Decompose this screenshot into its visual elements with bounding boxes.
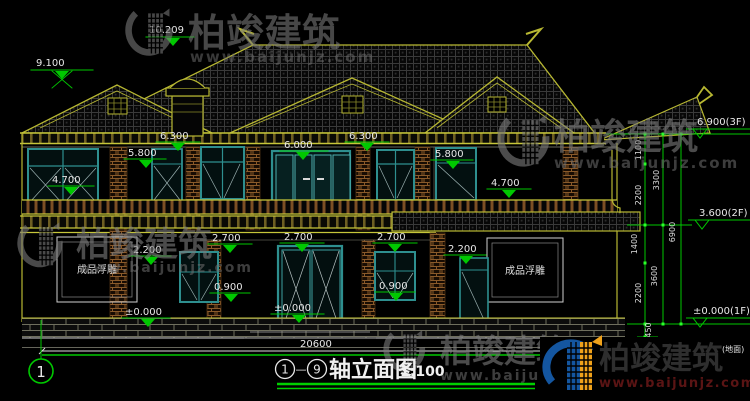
level-label-1f-winhead-left: 2.700 xyxy=(212,233,241,244)
total-width-dim: 20600 xyxy=(300,339,332,350)
relief-panel-right: 成品浮雕 xyxy=(487,238,563,302)
level-label-3f: 6.900(3F) xyxy=(697,117,746,128)
level-label-1f-winhead-right: 2.700 xyxy=(377,232,406,243)
watermark-brand: 柏竣建筑 xyxy=(76,225,212,265)
watermark-url: www.baijunjz.com xyxy=(78,260,253,276)
title-axis-start: 1 xyxy=(281,363,289,377)
brand-name-dark: 柏竣建筑 xyxy=(599,341,723,377)
cad-elevation-screenshot: 成品浮雕 成品浮雕 xyxy=(0,0,750,401)
gable-vent-right xyxy=(488,97,506,112)
watermark-top: 柏竣建筑 www.baijunjz.com xyxy=(129,8,376,66)
watermark-url: www.baijunjz.com xyxy=(554,154,739,172)
door-handle xyxy=(303,178,310,180)
brand-url-dark: www.baijunjz.com xyxy=(599,376,750,391)
level-label-2f-winhead-right: 5.800 xyxy=(435,149,464,160)
relief-panel-label: 成品浮雕 xyxy=(505,264,545,277)
sliding-door-2f-center xyxy=(272,151,350,204)
level-label-zero-left: ±0.000 xyxy=(125,307,162,318)
level-label-balcony-left: 4.700 xyxy=(52,175,81,186)
vdim-6900: 6900 xyxy=(668,222,677,242)
gable-vent-left xyxy=(108,98,127,114)
level-label-chimney: 9.100 xyxy=(36,58,65,69)
level-label-sill-right: 0.900 xyxy=(379,281,408,292)
vdim-2200-upper: 2200 xyxy=(634,185,643,205)
gable-vent-center xyxy=(342,96,363,113)
window-1f-right xyxy=(375,252,415,300)
level-label-zero-center: ±0.000 xyxy=(274,303,311,314)
vdim-3600: 3600 xyxy=(650,266,659,286)
vdim-3300: 3300 xyxy=(652,170,661,190)
door-1f-right-wing xyxy=(460,258,488,326)
level-label-2f-doorhead: 6.000 xyxy=(284,140,313,151)
window-2f-mid-right xyxy=(377,150,414,200)
level-label-sill-left: 0.900 xyxy=(214,282,243,293)
axis-bubble-number: 1 xyxy=(36,363,46,381)
brick-pier xyxy=(430,233,445,322)
vdim-450: 450 xyxy=(644,322,653,337)
level-label-2f-winhead-left: 5.800 xyxy=(128,148,157,159)
title-axis-end: 9 xyxy=(313,363,321,377)
door-handle xyxy=(317,178,324,180)
watermark-brand: 柏竣建筑 xyxy=(554,117,698,158)
level-label-balcony-right: 4.700 xyxy=(491,178,520,189)
level-label-1f: ±0.000(1F) xyxy=(693,306,750,317)
ground-level-label: (地面) xyxy=(722,344,744,354)
brick-pier xyxy=(362,240,375,322)
ridge-tip-right xyxy=(526,29,541,45)
brand-logo-colored: 柏竣建筑 www.baijunjz.com xyxy=(546,335,750,391)
watermark-url: www.baijunjz.com xyxy=(190,48,375,66)
vdim-1400: 1400 xyxy=(630,234,639,254)
title-axis-dash: — xyxy=(296,363,307,376)
window-2f-mid-left xyxy=(201,147,244,199)
level-label-2f: 3.600(2F) xyxy=(699,208,748,219)
level-label-1f-winhead-center: 2.700 xyxy=(284,232,313,243)
elevation-drawing-canvas: 成品浮雕 成品浮雕 xyxy=(0,0,750,401)
watermark-logo-icon xyxy=(20,222,59,265)
chimney xyxy=(166,79,209,136)
pent-roof-right-wing xyxy=(392,212,640,231)
level-label-panel-top-right: 2.200 xyxy=(448,244,477,255)
vdim-2200-lower: 2200 xyxy=(634,283,643,303)
level-label-eave-left: 6.300 xyxy=(160,131,189,142)
level-label-eave-right: 6.300 xyxy=(349,131,378,142)
eave-tip-right xyxy=(697,87,712,104)
title-scale: 1:100 xyxy=(400,364,445,380)
